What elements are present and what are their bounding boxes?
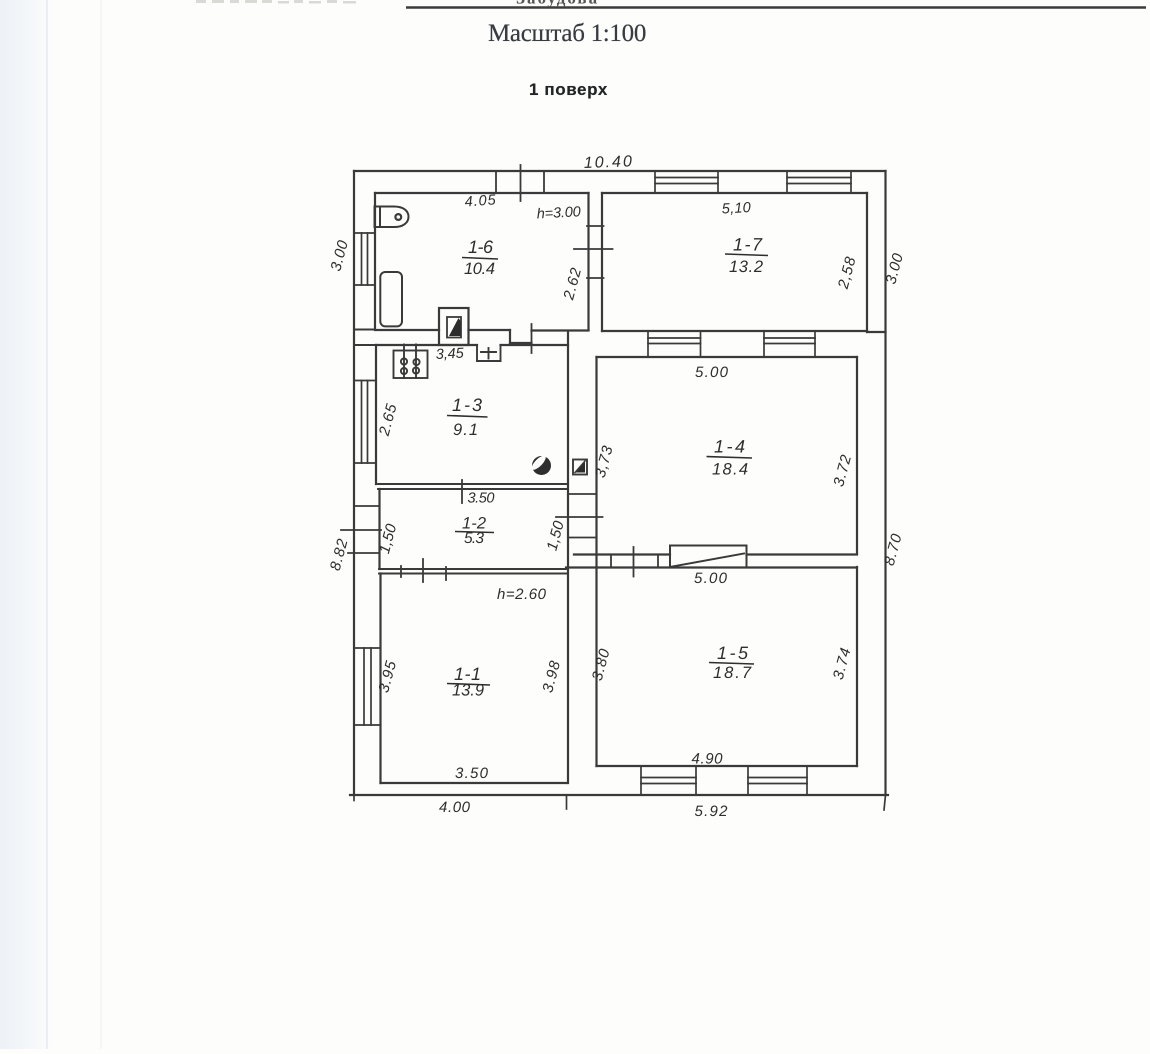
- svg-text:4.05: 4.05: [464, 192, 497, 210]
- svg-text:5.3: 5.3: [464, 530, 484, 547]
- svg-text:9.1: 9.1: [453, 421, 478, 439]
- svg-text:5.00: 5.00: [694, 570, 728, 587]
- svg-text:1-5: 1-5: [717, 643, 749, 663]
- svg-text:5.00: 5.00: [695, 364, 729, 381]
- svg-text:3,45: 3,45: [435, 346, 465, 363]
- svg-text:3.50: 3.50: [455, 765, 489, 782]
- svg-text:Забудова: Забудова: [516, 0, 599, 8]
- svg-text:13.9: 13.9: [452, 682, 484, 700]
- svg-text:18.7: 18.7: [713, 664, 752, 682]
- svg-text:4.90: 4.90: [692, 751, 724, 768]
- svg-text:1-6: 1-6: [468, 237, 494, 257]
- svg-text:5.92: 5.92: [695, 803, 729, 820]
- svg-text:h=3.00: h=3.00: [536, 204, 581, 222]
- svg-text:1-4: 1-4: [714, 437, 745, 457]
- svg-text:5,10: 5,10: [721, 200, 751, 217]
- svg-text:1-3: 1-3: [452, 395, 482, 415]
- svg-text:13.2: 13.2: [729, 258, 763, 276]
- svg-text:1-7: 1-7: [733, 235, 763, 255]
- svg-text:10.40: 10.40: [584, 153, 633, 172]
- svg-text:18.4: 18.4: [712, 461, 748, 479]
- svg-text:h=2.60: h=2.60: [497, 586, 547, 603]
- svg-text:10.4: 10.4: [464, 260, 495, 278]
- svg-text:3.50: 3.50: [468, 491, 495, 507]
- svg-text:4.00: 4.00: [439, 799, 471, 816]
